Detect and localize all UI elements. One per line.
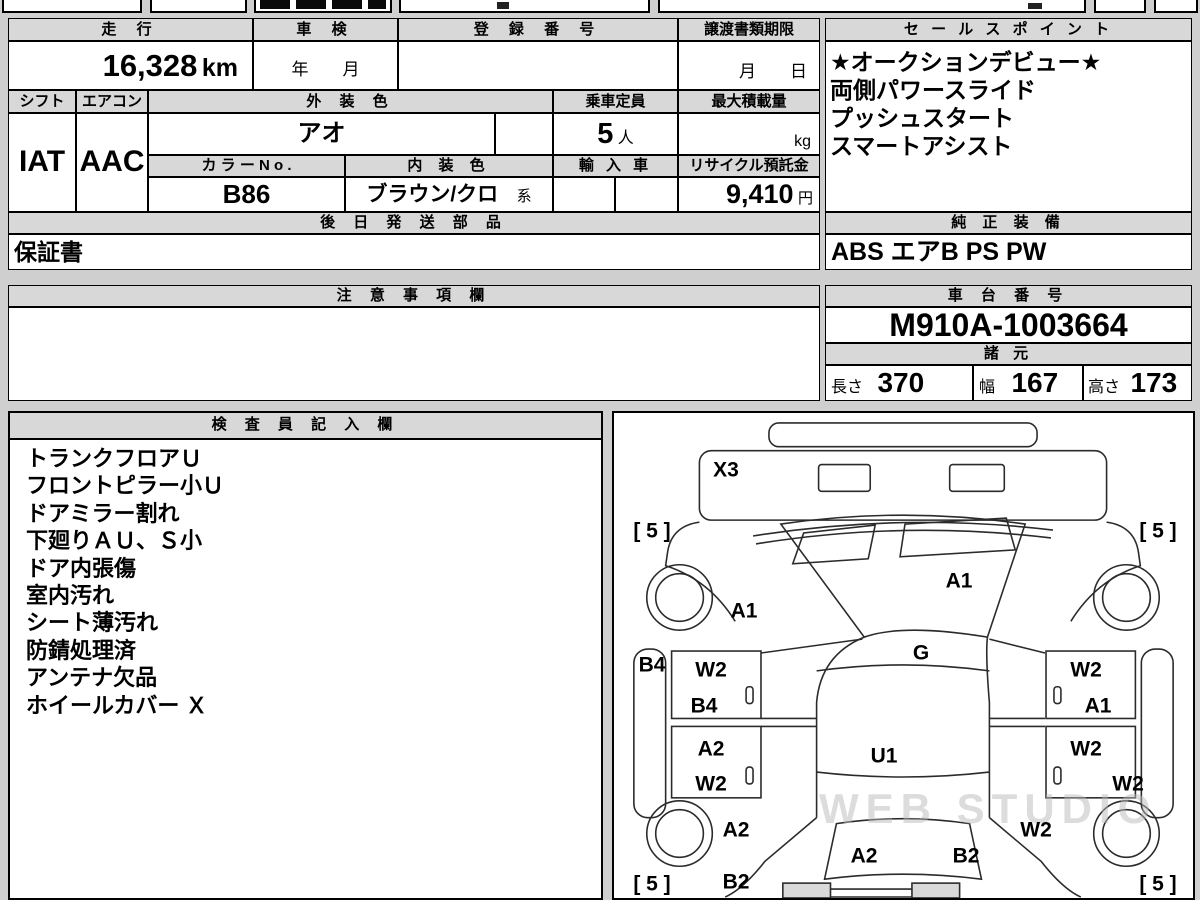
damage-label-b2-rear-left: B2 <box>723 872 750 893</box>
damage-label-w2-front-left-door: W2 <box>695 660 727 681</box>
damage-diagram-box: WEB STUDIO <box>612 411 1195 900</box>
top-row-fragment-cell <box>150 0 247 13</box>
dimension-length-value: 370 <box>867 367 924 398</box>
inspector-note-item: ドアミラー割れ <box>26 500 597 527</box>
dimension-width-label: 幅 <box>979 379 995 396</box>
sales-point-line: スマートアシスト <box>830 132 1187 160</box>
top-row-fragment-cell <box>1094 0 1146 13</box>
top-row-fragment-cell <box>2 0 142 13</box>
top-row-text-remnant <box>497 2 509 9</box>
damage-label-w2-right-rocker: W2 <box>1112 774 1144 795</box>
exterior-color-spare-cell <box>495 113 553 155</box>
interior-color-text: ブラウン/クロ <box>366 183 498 206</box>
wheel-front-left <box>647 565 713 630</box>
roof-arc-bottom <box>817 772 990 777</box>
damage-label-u1-roof-center: U1 <box>871 746 898 767</box>
inspector-notes-list: トランクフロアＵ フロントピラー小Ｕ ドアミラー割れ 下廻りＡＵ、Ｓ小 ドア内張… <box>26 445 597 719</box>
tire-tread-label: [ 5 ] <box>633 874 670 895</box>
transfer-deadline-value: 月 日 <box>678 41 820 90</box>
sales-point-line: プッシュスタート <box>830 104 1187 132</box>
wheel-rear-left <box>656 810 704 858</box>
max-load-value: kg <box>678 113 820 155</box>
registration-number-header: 登 録 番 号 <box>398 18 678 41</box>
wheel-rear-left <box>647 801 713 866</box>
inspector-notes-header: 検 査 員 記 入 欄 <box>10 413 601 440</box>
hood-panel <box>699 451 1106 520</box>
capacity-header: 乗車定員 <box>553 90 678 113</box>
taillight-right <box>912 883 960 898</box>
interior-color-suffix: 系 <box>503 188 532 205</box>
inspector-note-item: フロントピラー小Ｕ <box>26 472 597 499</box>
dimension-length-cell: 長さ 370 <box>825 365 973 401</box>
sales-point-line: ★オークションデビュー★ <box>830 48 1187 76</box>
mileage-unit: km <box>202 54 238 82</box>
damage-label-w2-front-right-door: W2 <box>1070 660 1102 681</box>
dimension-height-cell: 高さ 173 <box>1083 365 1192 401</box>
recycle-deposit-header: リサイクル預託金 <box>678 155 820 177</box>
damage-label-w2-rear-right-fender: W2 <box>1020 820 1052 841</box>
damage-label-x3: X3 <box>713 460 739 481</box>
door-handle <box>746 687 753 704</box>
headlight-right <box>950 465 1005 492</box>
tire-tread-label: [ 5 ] <box>633 521 670 542</box>
sales-points-body: ★オークションデビュー★ 両側パワースライド プッシュスタート スマートアシスト <box>825 41 1192 212</box>
cautions-body <box>8 307 820 401</box>
wheel-front-right <box>1103 574 1151 622</box>
inspector-note-item: 防錆処理済 <box>26 637 597 664</box>
door-handle <box>1054 767 1061 784</box>
max-load-unit: kg <box>794 133 811 150</box>
dimension-width-cell: 幅 167 <box>973 365 1083 401</box>
exterior-color-value: アオ <box>148 113 495 155</box>
damage-label-a2-rear-left-door: A2 <box>698 739 725 760</box>
inspector-note-item: トランクフロアＵ <box>26 445 597 472</box>
top-row-fragment-cell <box>658 0 1086 13</box>
cautions-header: 注 意 事 項 欄 <box>8 285 820 307</box>
recycle-deposit-unit: 円 <box>798 190 813 207</box>
mileage-header: 走 行 <box>8 18 253 41</box>
door-handle <box>1054 687 1061 704</box>
damage-label-w2-rear-right-door: W2 <box>1070 739 1102 760</box>
damage-label-a1-front-right-door: A1 <box>1085 696 1112 717</box>
transfer-deadline-header: 譲渡書類期限 <box>678 18 820 41</box>
tire-tread-label: [ 5 ] <box>1139 874 1176 895</box>
wheel-front-right <box>1094 565 1160 630</box>
sales-point-line: 両側パワースライド <box>830 76 1187 104</box>
chassis-number-header: 車 台 番 号 <box>825 285 1192 307</box>
top-row-fragment-cell <box>399 0 650 13</box>
top-row-text-remnant <box>260 0 386 9</box>
damage-label-a1-windshield: A1 <box>946 571 973 592</box>
watermark: WEB STUDIO <box>819 785 1157 833</box>
genuine-equipment-header: 純 正 装 備 <box>825 212 1192 234</box>
max-load-header: 最大積載量 <box>678 90 820 113</box>
dimension-length-label: 長さ <box>831 379 863 396</box>
wheel-front-left <box>656 574 704 622</box>
b-pillar-right <box>989 718 1045 726</box>
dimension-width-value: 167 <box>999 367 1058 398</box>
damage-label-w2-rear-left-door: W2 <box>695 774 727 795</box>
damage-label-a2-rear-left-fender: A2 <box>723 820 750 841</box>
capacity-unit: 人 <box>618 130 634 147</box>
damage-label-b4-left-rocker: B4 <box>639 655 666 676</box>
front-bumper <box>769 423 1037 447</box>
shift-value: IAT <box>8 113 76 212</box>
inspector-note-item: 室内汚れ <box>26 582 597 609</box>
inspector-note-item: シート薄汚れ <box>26 609 597 636</box>
damage-label-b2-rear-glass: B2 <box>953 846 980 867</box>
recycle-deposit-value: 9,410 円 <box>678 177 820 212</box>
shaken-header: 車 検 <box>253 18 398 41</box>
damage-label-b4-front-left-door: B4 <box>691 696 718 717</box>
sales-points-header: セ ー ル ス ポ イ ン ト <box>825 18 1192 41</box>
taillight-left <box>783 883 831 898</box>
top-row-text-remnant <box>1028 3 1042 9</box>
inspector-note-item: アンテナ欠品 <box>26 664 597 691</box>
later-parts-header: 後 日 発 送 部 品 <box>8 212 820 234</box>
inspector-notes-box: 検 査 員 記 入 欄 トランクフロアＵ フロントピラー小Ｕ ドアミラー割れ 下… <box>8 411 603 900</box>
import-car-value-cell <box>553 177 615 212</box>
auction-sheet: 走 行 車 検 登 録 番 号 譲渡書類期限 16,328 km 年 月 月 日… <box>0 0 1200 900</box>
later-parts-value: 保証書 <box>8 234 820 270</box>
top-row-fragment-cell <box>254 0 392 13</box>
inspector-note-item: ドア内張傷 <box>26 555 597 582</box>
registration-number-value <box>398 41 678 90</box>
headlight-left <box>819 465 871 492</box>
aircon-header: エアコン <box>76 90 148 113</box>
import-car-header: 輸 入 車 <box>553 155 678 177</box>
a-pillar-right <box>989 639 1045 653</box>
import-car-value-cell <box>615 177 678 212</box>
interior-color-header: 内 装 色 <box>345 155 553 177</box>
interior-color-value: ブラウン/クロ 系 <box>345 177 553 212</box>
dimension-height-label: 高さ <box>1088 379 1120 396</box>
inspector-note-item: 下廻りＡＵ、Ｓ小 <box>26 527 597 554</box>
exterior-color-header: 外 装 色 <box>148 90 553 113</box>
genuine-equipment-value: ABS エアB PS PW <box>825 234 1192 270</box>
color-no-header: カ ラ ー N o . <box>148 155 345 177</box>
capacity-number: 5 <box>597 118 613 150</box>
door-handle <box>746 767 753 784</box>
tire-tread-label: [ 5 ] <box>1139 521 1176 542</box>
b-pillar-left <box>761 718 817 726</box>
mileage-number: 16,328 <box>103 48 198 83</box>
mileage-value: 16,328 km <box>8 41 253 90</box>
color-no-value: B86 <box>148 177 345 212</box>
damage-label-g-roof: G <box>913 643 929 664</box>
recycle-deposit-number: 9,410 <box>726 179 794 209</box>
shift-header: シフト <box>8 90 76 113</box>
rear-bumper <box>831 889 912 897</box>
capacity-value: 5 人 <box>553 113 678 155</box>
dimensions-header: 諸 元 <box>825 343 1192 365</box>
damage-label-a1-left-fender: A1 <box>731 601 758 622</box>
shaken-value: 年 月 <box>253 41 398 90</box>
chassis-number-value: M910A-1003664 <box>825 307 1192 343</box>
wiper-right <box>900 518 1015 557</box>
top-row-fragment-cell <box>1154 0 1198 13</box>
dimension-height-value: 173 <box>1124 367 1177 398</box>
roof-arc-top <box>817 665 990 671</box>
inspector-note-item: ホイールカバー Ｘ <box>26 692 597 719</box>
damage-label-a2-rear-glass: A2 <box>851 846 878 867</box>
aircon-value: AAC <box>76 113 148 212</box>
